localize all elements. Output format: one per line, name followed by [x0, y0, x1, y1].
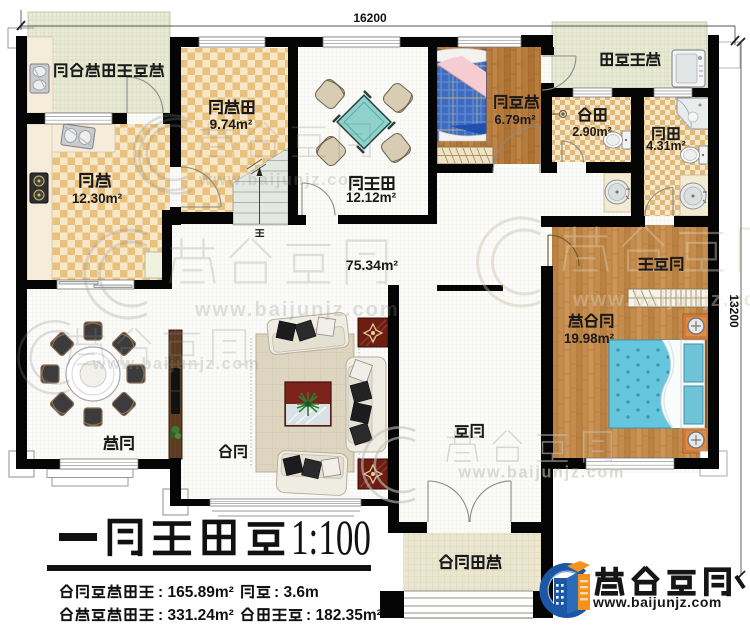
- svg-text:1:100: 1:100: [291, 509, 371, 565]
- svg-text:: 331.24m²: : 331.24m²: [158, 607, 234, 624]
- svg-text:www.baijunjz.com: www.baijunjz.com: [198, 171, 365, 189]
- svg-text:19.98m²: 19.98m²: [564, 331, 615, 346]
- svg-text:www.baijunjz.com: www.baijunjz.com: [572, 289, 750, 311]
- svg-text:www.baijunjz.com: www.baijunjz.com: [194, 299, 400, 321]
- svg-text:www.baijunjz.com: www.baijunjz.com: [458, 464, 626, 482]
- svg-text:16200: 16200: [353, 11, 387, 25]
- svg-text:: 3.6m: : 3.6m: [274, 584, 319, 601]
- svg-text:13200: 13200: [727, 294, 741, 328]
- svg-text:6.79m²: 6.79m²: [494, 112, 536, 127]
- svg-text:75.34m²: 75.34m²: [346, 257, 398, 273]
- svg-text:: 182.35m²: : 182.35m²: [306, 607, 382, 624]
- svg-text:www.baijunjz.com: www.baijunjz.com: [92, 355, 261, 373]
- svg-text:12.12m²: 12.12m²: [346, 190, 397, 205]
- svg-text:2.90m²: 2.90m²: [572, 125, 612, 139]
- svg-text:12.30m²: 12.30m²: [72, 191, 123, 206]
- svg-text:4.31m²: 4.31m²: [646, 139, 686, 153]
- svg-text:www.baijunjz.com: www.baijunjz.com: [592, 594, 722, 610]
- svg-text:9.74m²: 9.74m²: [210, 117, 253, 132]
- svg-text:: 165.89m²: : 165.89m²: [158, 584, 234, 601]
